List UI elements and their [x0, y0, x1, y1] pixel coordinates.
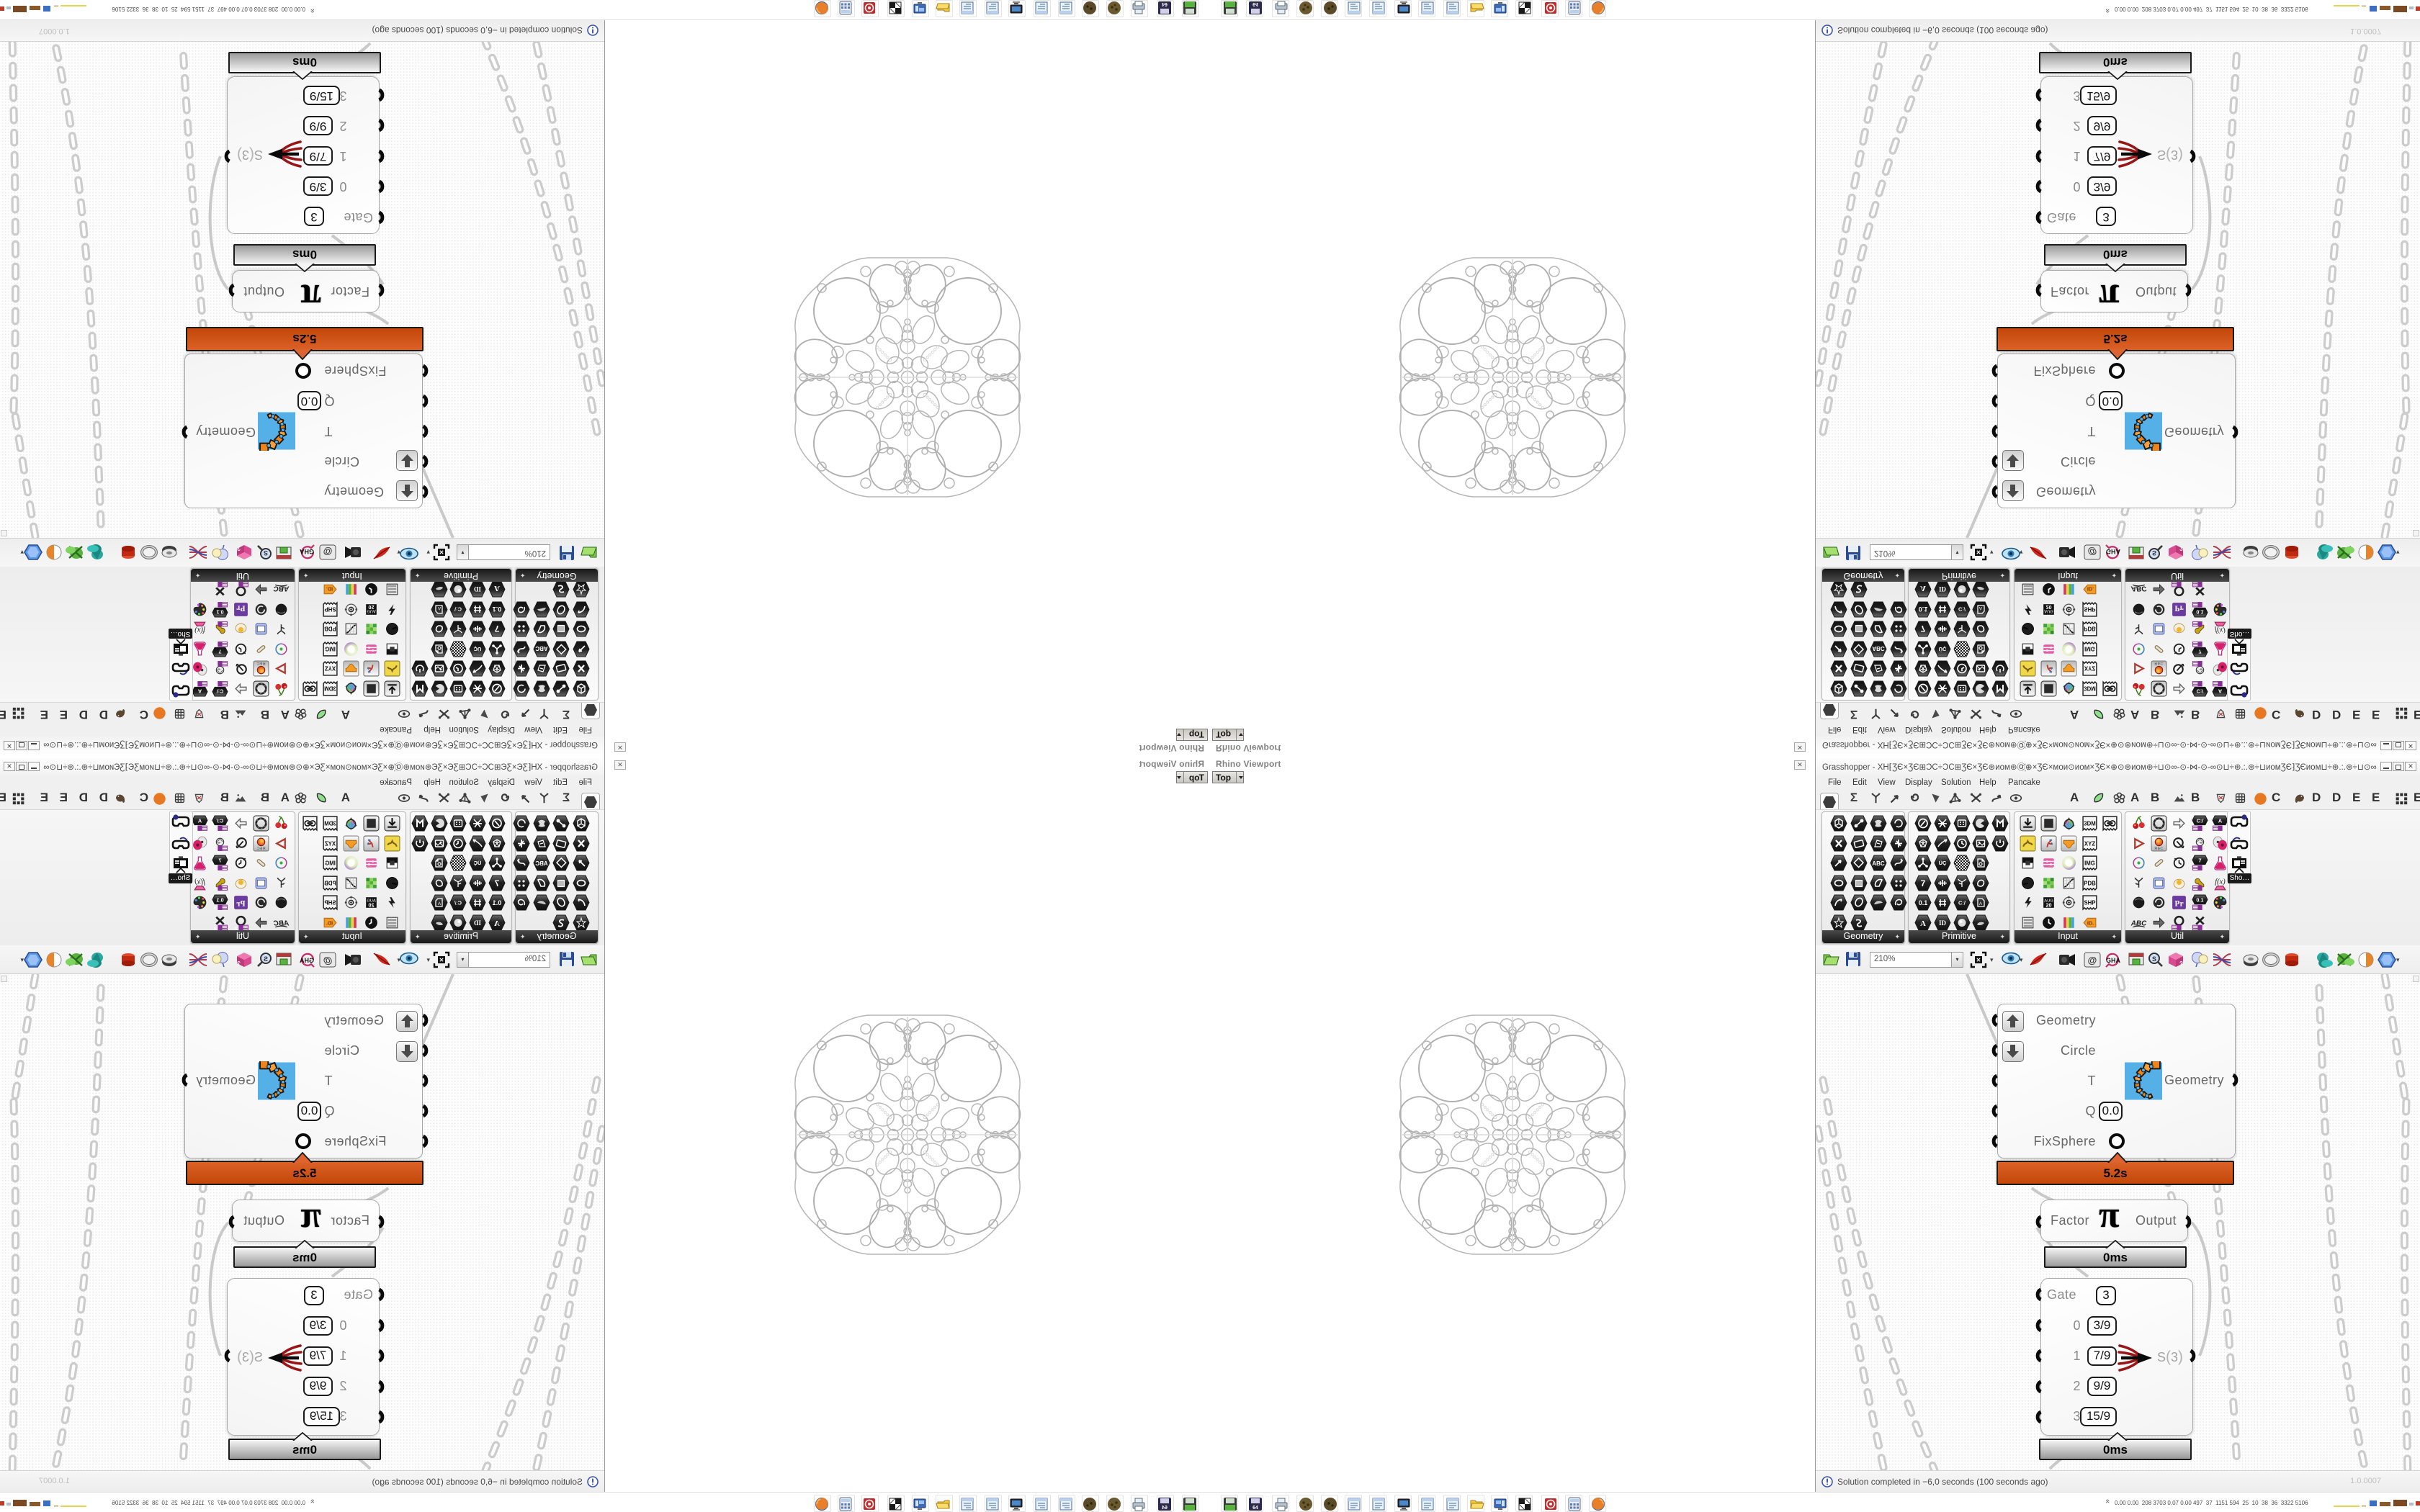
svg-text:3DM: 3DM [324, 685, 336, 691]
svg-text:X…: X… [2204, 847, 2208, 852]
svg-text:SHP: SHP [2084, 606, 2095, 612]
svg-text:PDB: PDB [2084, 881, 2096, 887]
svg-text:X…: X… [212, 906, 216, 911]
svg-text:ID.: ID. [2087, 585, 2094, 592]
svg-text:ABC: ABC [1872, 645, 1885, 652]
svg-text:0.1: 0.1 [2196, 609, 2203, 616]
svg-text:20: 20 [2045, 901, 2051, 908]
svg-text:?: ? [237, 960, 241, 967]
svg-text:0.1: 0.1 [493, 606, 502, 613]
svg-text:X…: X… [212, 847, 216, 852]
svg-text:XYZ: XYZ [2084, 841, 2095, 847]
svg-text:S: S [264, 549, 268, 557]
svg-text:GHA: GHA [300, 957, 315, 964]
svg-text:ABC: ABC [273, 584, 290, 592]
svg-text:Pr: Pr [2174, 603, 2183, 612]
svg-text:20: 20 [368, 901, 374, 908]
svg-text:IMG: IMG [2084, 860, 2095, 867]
svg-text:7: 7 [1921, 624, 1926, 634]
svg-text:A: A [2218, 817, 2223, 824]
svg-text:C:/: C:/ [217, 688, 224, 695]
svg-text:ABC: ABC [535, 860, 548, 867]
svg-text:0.1: 0.1 [2196, 896, 2203, 903]
svg-text:@: @ [323, 955, 333, 966]
svg-text:X…: X… [2204, 906, 2208, 911]
svg-text:S: S [2152, 955, 2156, 963]
svg-text:7: 7 [2198, 649, 2201, 655]
svg-text:Pr: Pr [236, 900, 245, 909]
svg-text:X…: X… [212, 867, 216, 871]
svg-text:X…: X… [2204, 601, 2208, 606]
svg-text:0.1: 0.1 [216, 896, 223, 903]
svg-text:X…: X… [212, 621, 216, 625]
svg-text:X…: X… [212, 660, 216, 665]
svg-text:PDB: PDB [2084, 625, 2096, 631]
svg-text:A: A [437, 901, 441, 906]
svg-text:0.1: 0.1 [1919, 606, 1928, 613]
svg-text:C:/: C:/ [2197, 688, 2204, 695]
svg-text:X…: X… [2204, 660, 2208, 665]
svg-text:GHA: GHA [2106, 957, 2121, 964]
svg-text:X…: X… [212, 827, 216, 832]
svg-text:S: S [2152, 549, 2156, 557]
svg-text:7: 7 [2198, 857, 2201, 863]
svg-text:0.1: 0.1 [493, 899, 502, 906]
svg-text:PDB: PDB [324, 881, 336, 887]
svg-text:A: A [494, 919, 500, 928]
svg-text:A: A [1979, 901, 1983, 906]
svg-text:ABC: ABC [273, 920, 290, 928]
svg-text:A: A [2218, 688, 2223, 695]
svg-text:ÜÇ: ÜÇ [1939, 860, 1947, 866]
svg-text:ABC: ABC [2130, 584, 2147, 592]
svg-text:@: @ [2088, 546, 2097, 557]
svg-text:X…: X… [2204, 621, 2208, 625]
svg-text:X…: X… [2204, 887, 2208, 891]
svg-text:Pr: Pr [236, 603, 245, 612]
svg-text:ÜÇ: ÜÇ [473, 646, 481, 652]
svg-text:REC: REC [2154, 661, 2163, 665]
svg-text:3DM: 3DM [2084, 821, 2096, 827]
svg-text:XYZ: XYZ [325, 665, 336, 671]
svg-text:SHP: SHP [324, 606, 336, 612]
svg-text:A: A [197, 817, 202, 824]
svg-text:64: 64 [1162, 1506, 1168, 1511]
svg-text:A: A [1979, 606, 1983, 611]
svg-text:A: A [494, 584, 500, 593]
svg-text:ID.: ID. [2087, 920, 2094, 927]
svg-text:X…: X… [2204, 641, 2208, 645]
svg-text:ID: ID [474, 919, 482, 927]
svg-text:IMG: IMG [325, 645, 336, 652]
svg-text:ID: ID [1939, 585, 1947, 593]
svg-text:IMG: IMG [325, 860, 336, 867]
svg-text:✕: ✕ [1976, 549, 1981, 555]
svg-text:REC: REC [256, 847, 265, 851]
svg-text:A: A [1920, 919, 1926, 928]
svg-text:3DM: 3DM [2084, 685, 2096, 691]
svg-text:ID.: ID. [326, 585, 333, 592]
svg-text:7: 7 [494, 878, 499, 888]
svg-text:ABC: ABC [1872, 860, 1885, 867]
svg-text:✕: ✕ [439, 957, 444, 963]
svg-text:ID.: ID. [326, 920, 333, 927]
svg-text:?: ? [2179, 545, 2183, 552]
svg-text:7: 7 [218, 649, 221, 655]
svg-text:A: A [437, 606, 441, 611]
svg-text:REC: REC [256, 661, 265, 665]
svg-text:0.1: 0.1 [1919, 899, 1928, 906]
svg-text:C:/: C:/ [1958, 606, 1966, 613]
svg-text:GHA: GHA [300, 548, 315, 555]
svg-text:C:/: C:/ [454, 606, 462, 613]
svg-text:20: 20 [368, 604, 374, 611]
svg-text:7: 7 [494, 624, 499, 634]
svg-text:C:/: C:/ [454, 900, 462, 906]
svg-text:7: 7 [218, 857, 221, 863]
svg-text:X…: X… [212, 680, 216, 685]
svg-text:A: A [197, 688, 202, 695]
svg-text:f(x): f(x) [194, 878, 205, 886]
svg-text:A: A [1920, 584, 1926, 593]
svg-text:ID: ID [474, 585, 482, 593]
svg-text:?: ? [2179, 960, 2183, 967]
svg-text:f(x): f(x) [2215, 878, 2226, 886]
svg-text:ABC: ABC [535, 645, 548, 652]
svg-text:@: @ [323, 546, 333, 557]
svg-text:64: 64 [1252, 2, 1258, 7]
svg-text:7: 7 [1921, 878, 1926, 888]
svg-text:20: 20 [2045, 604, 2051, 611]
svg-text:@: @ [2088, 955, 2097, 966]
svg-text:✕: ✕ [1976, 957, 1981, 963]
svg-text:REC: REC [2154, 847, 2163, 851]
svg-text:ABC: ABC [2130, 920, 2147, 928]
svg-text:✕: ✕ [439, 549, 444, 555]
svg-text:X…: X… [212, 641, 216, 645]
svg-text:PDB: PDB [324, 625, 336, 631]
svg-text:ÜÇ: ÜÇ [473, 860, 481, 866]
svg-text:?: ? [237, 545, 241, 552]
svg-text:C:/: C:/ [2197, 817, 2204, 824]
svg-text:X…: X… [2204, 827, 2208, 832]
svg-text:C:/: C:/ [217, 817, 224, 824]
svg-text:f(x): f(x) [2215, 626, 2226, 634]
svg-text:IMG: IMG [2084, 645, 2095, 652]
svg-text:3DM: 3DM [324, 821, 336, 827]
svg-text:X…: X… [2204, 680, 2208, 685]
svg-text:C:/: C:/ [1958, 900, 1966, 906]
svg-text:f(x): f(x) [194, 626, 205, 634]
svg-text:X…: X… [2204, 867, 2208, 871]
svg-text:ÜÇ: ÜÇ [1939, 646, 1947, 652]
svg-text:ID: ID [1939, 919, 1947, 927]
svg-text:X…: X… [212, 887, 216, 891]
svg-text:X…: X… [212, 601, 216, 606]
svg-text:SHP: SHP [2084, 900, 2095, 906]
svg-text:SHP: SHP [324, 900, 336, 906]
svg-text:64: 64 [1162, 2, 1168, 7]
svg-text:S: S [264, 955, 268, 963]
svg-text:64: 64 [1252, 1506, 1258, 1511]
svg-text:0.1: 0.1 [216, 609, 223, 616]
svg-text:XYZ: XYZ [325, 841, 336, 847]
svg-text:Pr: Pr [2174, 900, 2183, 909]
svg-text:XYZ: XYZ [2084, 665, 2095, 671]
svg-text:GHA: GHA [2106, 548, 2121, 555]
